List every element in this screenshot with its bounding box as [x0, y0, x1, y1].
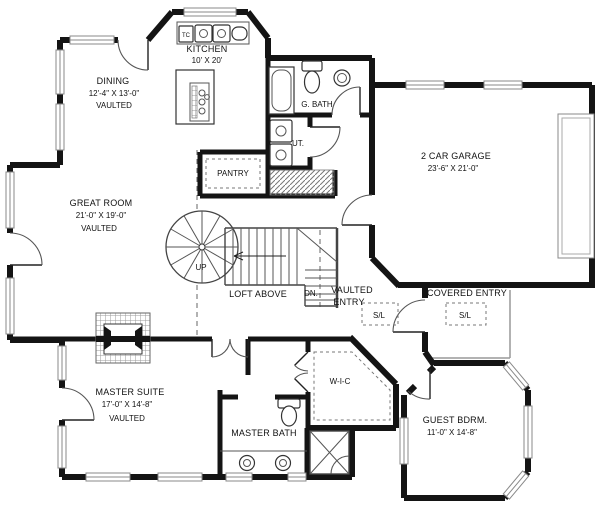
covered-entry-porch — [428, 290, 510, 358]
master-suite-label: MASTER SUITE — [96, 387, 165, 397]
vaulted-entry-label-2: ENTRY — [333, 297, 364, 307]
great-room-label: GREAT ROOM — [70, 198, 133, 208]
great-room-door — [10, 233, 42, 265]
window — [70, 36, 114, 44]
cooktop-icon — [192, 86, 197, 118]
window — [503, 471, 528, 499]
down-label: DN. — [304, 289, 318, 298]
master-suite-double-doors — [212, 339, 248, 357]
skylight-label: S/L — [373, 311, 386, 320]
wic-label: W-I-C — [330, 377, 351, 386]
dining-note: VAULTED — [96, 101, 132, 110]
floor-plan-page: KITCHEN 10' X 20' DINING 12'-4" X 13'-0"… — [0, 0, 600, 508]
window — [406, 81, 444, 89]
window — [56, 104, 64, 150]
dining-dims: 12'-4" X 13'-0" — [89, 89, 140, 98]
window — [6, 278, 14, 334]
loft-above-label: LOFT ABOVE — [229, 289, 287, 299]
fireplace — [96, 313, 150, 363]
master-suite-exterior-door — [62, 388, 94, 420]
window — [184, 8, 236, 16]
guest-bath-label: G. BATH — [301, 100, 333, 109]
trash-compactor-label: TC — [182, 33, 191, 39]
dining-label: DINING — [97, 76, 130, 86]
kitchen-label: KITCHEN — [187, 44, 228, 54]
great-room-dims: 21'-0" X 19'-0" — [76, 211, 127, 220]
window — [524, 406, 532, 458]
guest-bedroom-dims: 11'-0" X 14'-8" — [427, 428, 477, 437]
window — [58, 346, 66, 380]
window — [158, 473, 202, 481]
guest-bath-door — [332, 87, 360, 115]
master-suite-note: VAULTED — [109, 414, 145, 423]
tiled-landing — [270, 170, 334, 195]
window — [86, 473, 130, 481]
spiral-stair — [166, 211, 238, 283]
master-bath-label: MASTER BATH — [231, 428, 297, 438]
garage-door — [558, 114, 594, 258]
window — [58, 426, 66, 468]
sink-icon — [240, 456, 255, 471]
great-room-note: VAULTED — [81, 224, 117, 233]
up-label: UP — [195, 263, 206, 272]
toilet-icon — [278, 399, 300, 426]
sink-icon — [334, 70, 350, 86]
covered-entry-label: COVERED ENTRY — [427, 288, 507, 298]
garage-label: 2 CAR GARAGE — [421, 151, 491, 161]
sink-basin — [232, 27, 247, 40]
window — [56, 50, 64, 94]
stair-direction-arrow — [234, 252, 286, 260]
guest-bedroom-door — [408, 369, 430, 399]
pantry-label: PANTRY — [217, 169, 249, 178]
sink-icon — [276, 456, 291, 471]
garage-entry-door — [342, 195, 372, 225]
garage-dims: 23'-6" X 21'-0" — [428, 164, 479, 173]
dining-door — [118, 40, 148, 70]
window — [288, 473, 306, 481]
window — [484, 81, 522, 89]
skylight-label: S/L — [459, 311, 472, 320]
window — [503, 362, 528, 390]
floor-plan-drawing: KITCHEN 10' X 20' DINING 12'-4" X 13'-0"… — [0, 0, 600, 508]
master-suite-dims: 17'-0" X 14'-8" — [102, 400, 153, 409]
window — [226, 473, 252, 481]
washer-dryer-icons — [270, 120, 292, 166]
porch-edge — [428, 290, 510, 358]
window — [400, 418, 408, 464]
toilet-icon — [302, 61, 322, 93]
guest-bedroom-label: GUEST BDRM. — [423, 415, 488, 425]
shower-icon — [310, 431, 349, 474]
closet-double-doors — [295, 352, 308, 392]
utility-door — [310, 127, 340, 157]
utility-label: UT. — [292, 139, 304, 148]
kitchen-island — [176, 70, 214, 124]
kitchen-dims: 10' X 20' — [192, 56, 223, 65]
vaulted-entry-label-1: VAULTED — [331, 285, 373, 295]
window — [6, 172, 14, 228]
